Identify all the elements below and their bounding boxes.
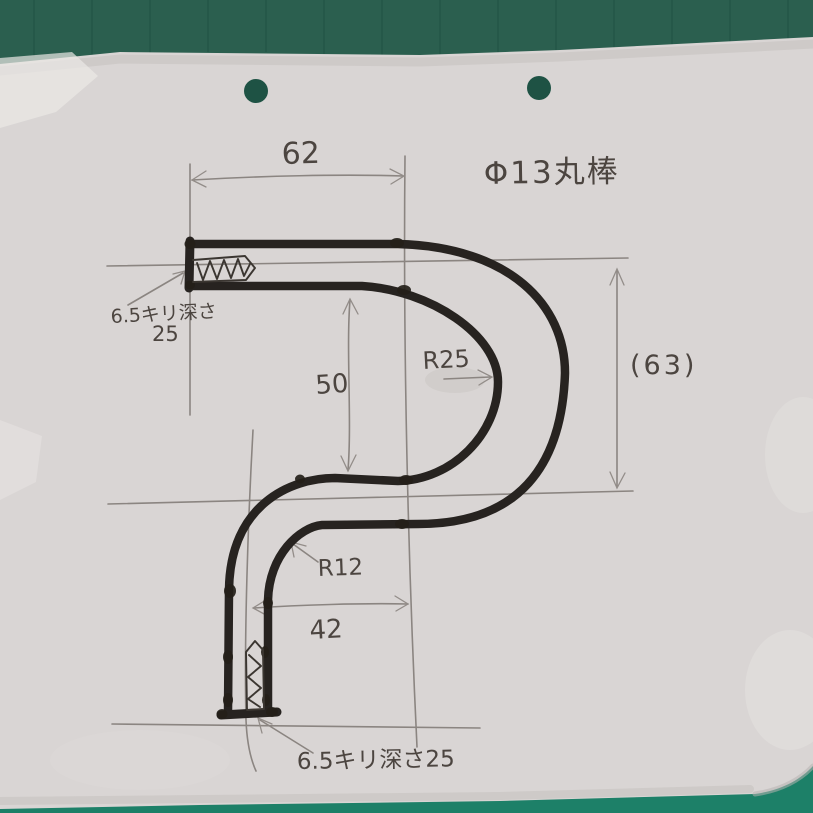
dim-62-label: 62 xyxy=(281,136,320,172)
dim-63-label: (63) xyxy=(630,350,697,381)
material-note-label: Φ13丸棒 xyxy=(484,154,620,192)
dim-42-label: 42 xyxy=(309,614,344,646)
punch-hole-right xyxy=(527,76,551,100)
hole-note-bottom: 6.5キリ深さ25 xyxy=(297,746,455,775)
photo-of-hand-drawn-rod-diagram: 62 Φ13丸棒 (63) 50 R25 R12 42 6.5キリ深さ 25 6… xyxy=(0,0,813,813)
radius-r12-label: R12 xyxy=(317,554,363,582)
rod-drawing-canvas: 62 Φ13丸棒 (63) 50 R25 R12 42 6.5キリ深さ 25 6… xyxy=(0,0,813,813)
hole-note-top-line2: 25 xyxy=(152,322,179,346)
punch-hole-left xyxy=(244,79,268,103)
radius-r25-label: R25 xyxy=(422,345,471,375)
dim-50-label: 50 xyxy=(314,369,349,401)
